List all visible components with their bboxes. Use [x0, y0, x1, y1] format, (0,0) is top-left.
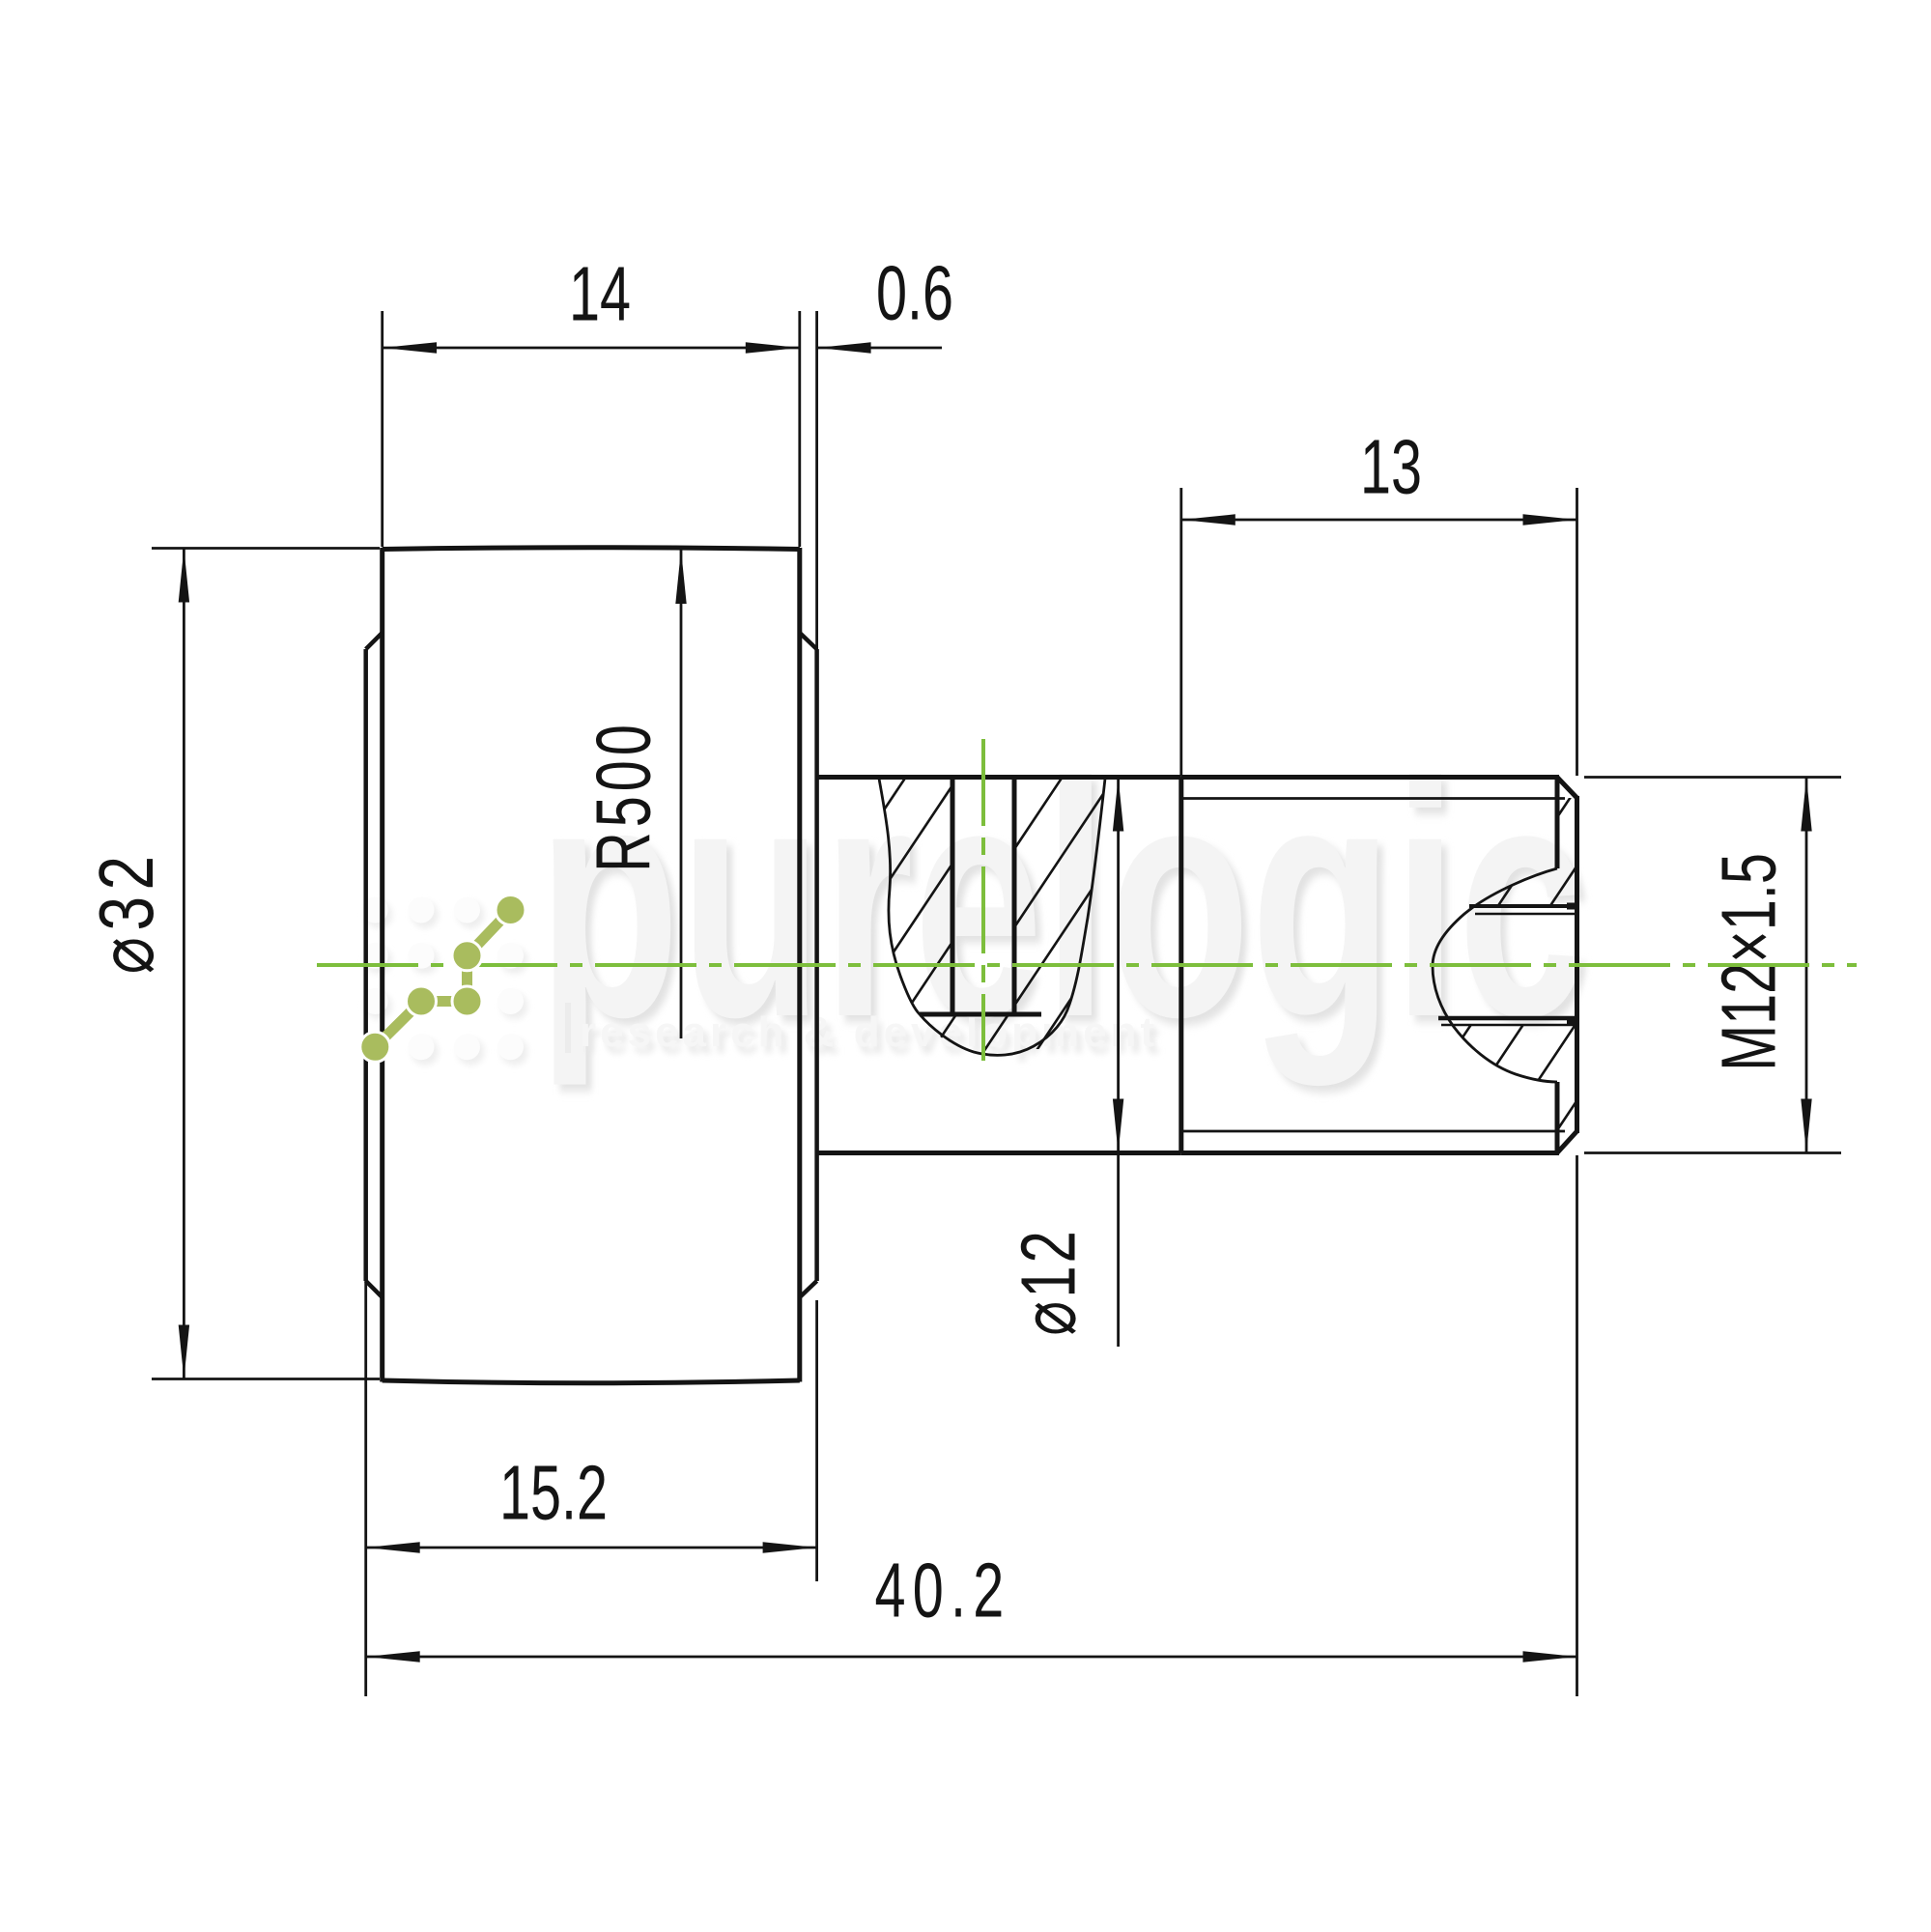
svg-text:R500: R500: [580, 720, 667, 872]
svg-text:⌀32: ⌀32: [83, 850, 169, 975]
svg-text:15.2: 15.2: [499, 1449, 608, 1536]
svg-text:0.6: 0.6: [876, 249, 953, 336]
svg-text:40.2: 40.2: [875, 1547, 1011, 1634]
svg-text:research & development: research & development: [580, 1009, 1158, 1056]
svg-text:14: 14: [569, 250, 631, 337]
svg-text:⌀12: ⌀12: [1005, 1228, 1091, 1336]
svg-text:13: 13: [1360, 423, 1422, 510]
svg-text:M12×1.5: M12×1.5: [1705, 853, 1792, 1071]
